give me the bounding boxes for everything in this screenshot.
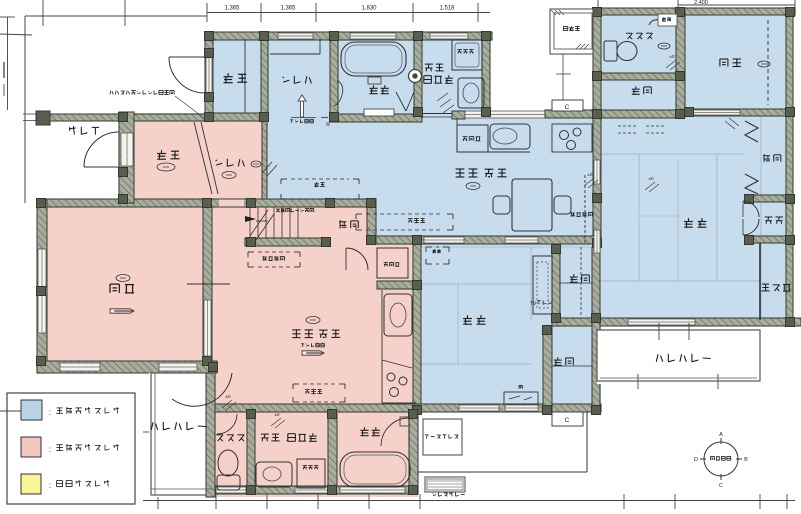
svg-text::: : xyxy=(49,481,51,490)
svg-text::: : xyxy=(49,408,51,417)
svg-text:R: R xyxy=(326,122,330,128)
svg-text:1.830: 1.830 xyxy=(361,6,377,12)
svg-text:±0: ±0 xyxy=(588,172,593,177)
svg-text:±0: ±0 xyxy=(275,412,280,417)
svg-text:C: C xyxy=(565,104,570,111)
svg-text:±0: ±0 xyxy=(226,394,231,399)
svg-text:A: A xyxy=(719,432,723,438)
svg-text:B: B xyxy=(744,457,748,463)
svg-text:2.400: 2.400 xyxy=(694,0,708,6)
svg-text:C: C xyxy=(565,417,570,424)
svg-text:1.365: 1.365 xyxy=(280,6,296,12)
svg-text:D: D xyxy=(694,457,698,463)
svg-text:C: C xyxy=(719,483,723,489)
svg-text:TV: TV xyxy=(530,301,537,307)
svg-text:±0: ±0 xyxy=(649,176,654,181)
svg-text:±0: ±0 xyxy=(670,54,675,59)
svg-text:1.365: 1.365 xyxy=(224,6,240,12)
svg-text:1.518: 1.518 xyxy=(439,6,455,12)
svg-text::: : xyxy=(49,445,51,454)
